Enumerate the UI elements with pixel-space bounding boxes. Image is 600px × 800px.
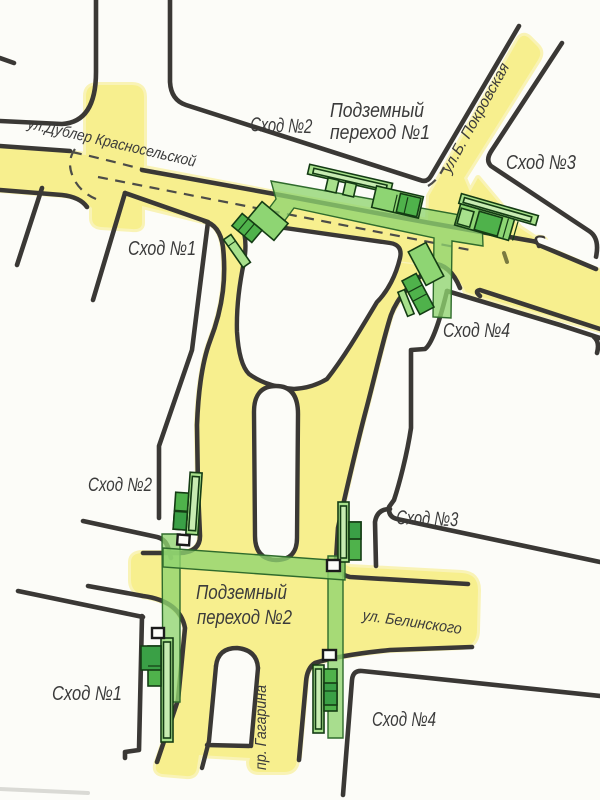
svg-text:Подземный: Подземный [330,100,424,122]
svg-text:Сход №1: Сход №1 [52,683,122,705]
svg-text:Сход №3: Сход №3 [506,152,576,174]
svg-text:Сход №2: Сход №2 [88,475,152,496]
svg-text:Подземный: Подземный [196,581,287,604]
svg-text:Сход №4: Сход №4 [443,320,510,342]
svg-text:Сход №2: Сход №2 [250,114,313,138]
svg-text:Сход №4: Сход №4 [372,709,436,731]
svg-text:пр. Гагарина: пр. Гагарина [253,685,270,770]
svg-text:переход №2: переход №2 [197,606,292,629]
svg-text:Сход №3: Сход №3 [396,507,459,531]
svg-text:Сход №1: Сход №1 [128,238,196,260]
svg-text:переход №1: переход №1 [330,122,430,144]
